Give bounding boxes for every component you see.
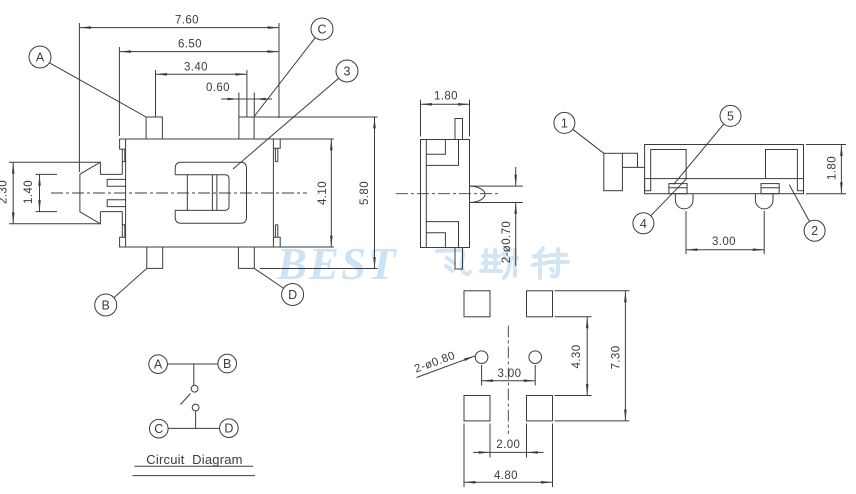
svg-text:0.60: 0.60 bbox=[206, 82, 230, 94]
svg-text:A: A bbox=[36, 51, 45, 65]
svg-text:7.60: 7.60 bbox=[175, 15, 199, 27]
svg-text:1.40: 1.40 bbox=[23, 180, 35, 204]
svg-text:1.80: 1.80 bbox=[434, 91, 458, 103]
svg-text:2-ø0.80: 2-ø0.80 bbox=[413, 350, 457, 376]
svg-text:Circuit Diagram: Circuit Diagram bbox=[146, 452, 242, 467]
svg-text:7.30: 7.30 bbox=[610, 346, 622, 370]
svg-text:6.50: 6.50 bbox=[178, 39, 202, 51]
svg-text:1.80: 1.80 bbox=[826, 156, 838, 180]
svg-text:2.00: 2.00 bbox=[496, 439, 520, 451]
svg-text:4.80: 4.80 bbox=[494, 470, 518, 482]
svg-text:5.80: 5.80 bbox=[359, 181, 371, 205]
svg-text:4.10: 4.10 bbox=[317, 181, 329, 205]
svg-text:2: 2 bbox=[811, 224, 818, 238]
svg-text:4: 4 bbox=[640, 217, 647, 231]
svg-text:B: B bbox=[102, 299, 110, 313]
svg-text:A: A bbox=[154, 358, 163, 372]
svg-text:C: C bbox=[317, 23, 326, 37]
svg-text:2-ø0.70: 2-ø0.70 bbox=[501, 221, 513, 263]
svg-text:3.00: 3.00 bbox=[712, 236, 736, 248]
svg-text:4.30: 4.30 bbox=[571, 345, 583, 369]
svg-text:C: C bbox=[154, 422, 163, 436]
svg-text:5: 5 bbox=[727, 109, 734, 123]
svg-text:3.40: 3.40 bbox=[184, 62, 208, 74]
svg-text:B: B bbox=[223, 357, 231, 371]
svg-text:3.00: 3.00 bbox=[498, 368, 522, 380]
svg-text:D: D bbox=[224, 422, 233, 436]
svg-text:1: 1 bbox=[561, 116, 568, 130]
svg-text:2.30: 2.30 bbox=[0, 180, 10, 204]
svg-text:D: D bbox=[288, 288, 297, 302]
svg-text:3: 3 bbox=[344, 65, 351, 79]
